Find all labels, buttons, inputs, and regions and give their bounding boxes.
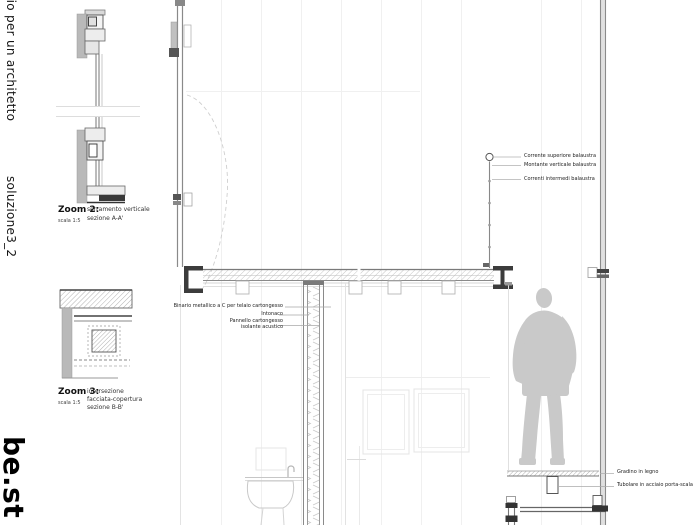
insulation-zigzag [308, 286, 319, 525]
zoom3-detail-drawing [60, 290, 132, 378]
facade-panel-gridlines [186, 0, 582, 525]
interior-elevation-panels [346, 282, 513, 525]
zoom2-detail-drawing [56, 10, 140, 203]
zoom2-desc-line2: sezione A-A' [87, 216, 123, 222]
zoom3-desc-line3: sezione B-B' [87, 405, 124, 411]
zoom3-desc-line2: facciata-copertura [87, 397, 142, 403]
steel-beam-left [184, 266, 203, 293]
stair-detail [506, 471, 615, 525]
zoom3-desc-line1: intersezione [87, 389, 124, 395]
studio-logo: be.st a [0, 436, 30, 525]
balustrade [486, 153, 521, 268]
stair-step [507, 471, 599, 476]
annotation-balustrade-top-rail: Corrente superiore balaustra [524, 154, 596, 159]
zoom3-scale: scala 1:5 [58, 401, 81, 406]
floor-slab [184, 263, 513, 294]
zoom2-desc-line1: serramento verticale [87, 207, 150, 213]
annotation-acoustic-insulation: isolante acustico [241, 325, 283, 330]
partition-wall [279, 281, 331, 525]
faucet [288, 466, 294, 477]
annotation-wood-step: Gradino in legno [617, 470, 658, 475]
annotation-steel-tube: Tubolare in acciaio porta-scala [617, 483, 693, 488]
facade-mullion-left [169, 0, 228, 525]
annotation-balustrade-mid-rails: Correnti intermedi balaustra [524, 177, 595, 182]
sheet-title-vertical: lio per un architetto [4, 0, 18, 121]
section-linework [0, 0, 700, 525]
balustrade-top-rail [486, 153, 493, 160]
annotation-balustrade-post: Montante verticale balaustra [524, 163, 596, 168]
annotation-plaster: Intonaco [261, 312, 283, 317]
annotation-metal-track: Binario metallico a C per telaio cartong… [174, 304, 283, 309]
sheet-subtitle-vertical: soluzione3_2 [4, 176, 18, 257]
balustrade-leader-lines [492, 157, 521, 180]
zoom2-scale: scala 1:5 [58, 219, 81, 224]
facade-mullion-right [588, 0, 609, 525]
human-silhouette [513, 287, 577, 465]
sink-fixture [245, 448, 303, 525]
drawing-sheet: lio per un architetto soluzione3_2 be.st… [0, 0, 700, 525]
stair-tube [547, 477, 558, 494]
